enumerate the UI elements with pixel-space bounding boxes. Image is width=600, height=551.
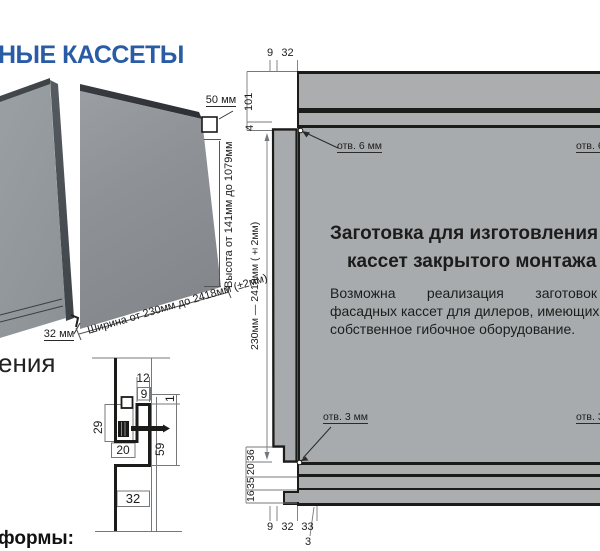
- blank-dim-101: 101: [244, 82, 256, 122]
- section-dim-20: 20: [112, 444, 134, 457]
- blank-dim-35: 35: [246, 477, 257, 490]
- corner-square-50mm: [202, 117, 217, 132]
- blank-corner-tab: [283, 491, 299, 505]
- dim-arrow-up: [265, 133, 270, 141]
- left-caption: ения: [0, 350, 55, 377]
- section-dim-9: 9: [138, 388, 150, 401]
- rail-clip: [122, 397, 133, 408]
- blank-body-line1: Возможна реализация заготовок: [330, 286, 597, 301]
- section-dim-59: 59: [154, 436, 167, 462]
- blank-dim-top-9: 9: [265, 48, 275, 60]
- blank-body-line3: собственное гибочное оборудование.: [330, 322, 597, 337]
- blank-top-flange: [297, 71, 600, 125]
- blank-bottom-flange: [297, 465, 600, 506]
- hole-note-top-right: отв. 6 мм: [576, 141, 600, 152]
- hole-note-top-left: отв. 6 мм: [337, 141, 382, 152]
- hole-note-bottom-left: отв. 3 мм: [323, 412, 368, 423]
- section-dim-12: 12: [133, 372, 153, 385]
- blank-dim-bot-33: 33: [298, 522, 317, 534]
- fold-band: [299, 477, 600, 490]
- blank-left-flange: [272, 128, 298, 463]
- blank-heading-line2: кассет закрытого монтажа: [347, 252, 581, 272]
- section-dim-1: 1: [164, 391, 177, 407]
- hole-note-bottom-right-text: отв. 3 мм: [576, 411, 600, 424]
- blank-dim-bot-32: 32: [278, 522, 297, 534]
- fold-band: [299, 490, 600, 506]
- blank-height-range: 230мм — 2418мм (±2мм): [250, 232, 261, 350]
- iso-height-range: Высота от 141мм до 1079мм: [224, 148, 236, 288]
- dim-arrow-down: [265, 452, 270, 460]
- hole-note-bottom-right: отв. 3 мм: [576, 412, 600, 423]
- blank-dim-bot-9: 9: [265, 522, 275, 534]
- iso-seam-dim: 32 мм: [42, 329, 76, 341]
- iso-depth-dim: 50 мм: [204, 95, 238, 107]
- fold-band: [299, 465, 600, 477]
- section-dim-29: 29: [92, 413, 105, 441]
- hole-note-bottom-left-text: отв. 3 мм: [323, 411, 368, 424]
- section-dim-32: 32: [120, 492, 146, 506]
- blank-body-line2: фасадных кассет для дилеров, имеющих: [330, 304, 597, 319]
- blank-heading-line1: Заготовка для изготовления: [330, 224, 597, 244]
- bottom-caption: формы:: [0, 529, 74, 549]
- blank-dim-20: 20: [246, 463, 257, 476]
- page-title: НЫЕ КАССЕТЫ: [0, 42, 184, 68]
- iso-depth-value: 50 мм: [206, 94, 236, 107]
- leader-50mm: [219, 111, 233, 119]
- blank-dim-top-32: 32: [278, 48, 297, 60]
- catalog-page: НЫЕ КАССЕТЫ: [0, 0, 600, 551]
- hole-note-top-right-text: отв. 6 мм: [576, 140, 600, 153]
- blank-dim-36: 36: [246, 448, 257, 462]
- hole-note-top-left-text: отв. 6 мм: [337, 140, 382, 153]
- blank-dim-4: 4: [245, 121, 257, 135]
- blank-dim-tab-3: 3: [303, 537, 313, 549]
- blank-dim-16: 16: [246, 490, 257, 503]
- screw: [118, 421, 170, 437]
- iso-seam-value: 32 мм: [44, 328, 74, 341]
- fold-line: [299, 108, 600, 113]
